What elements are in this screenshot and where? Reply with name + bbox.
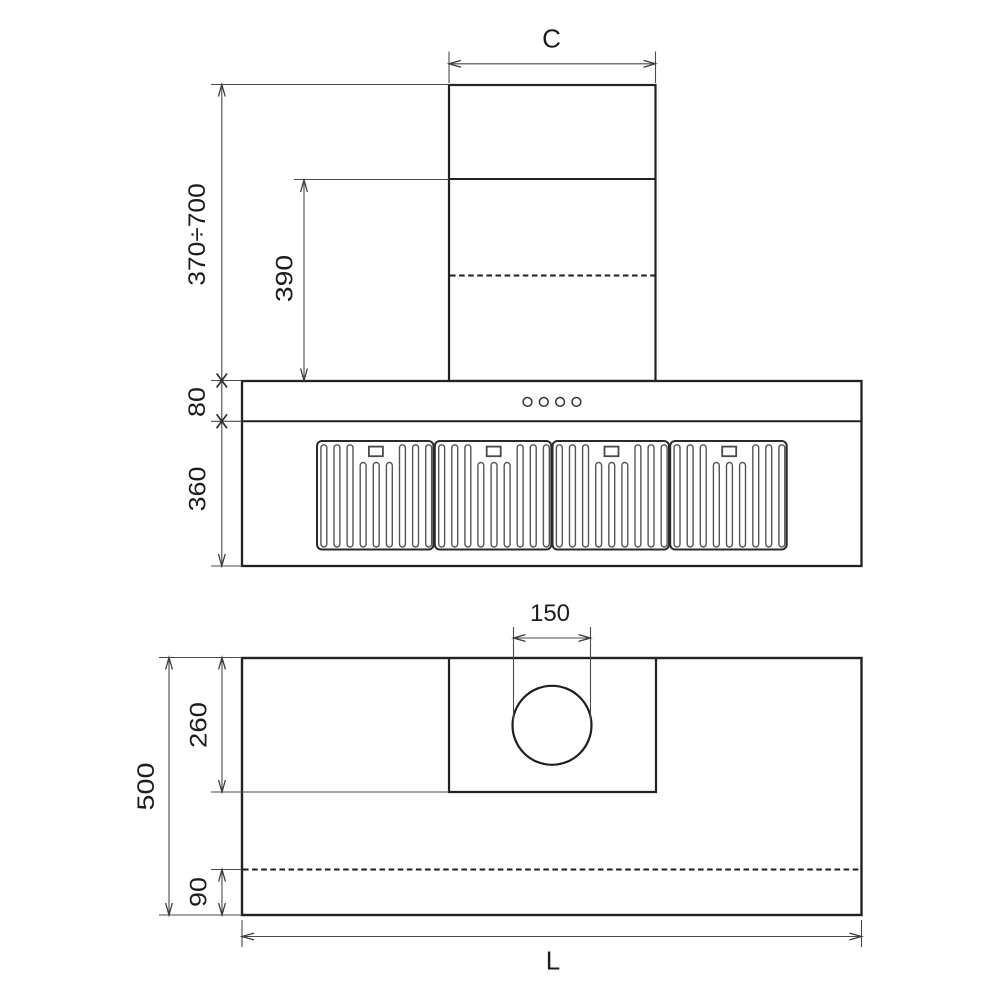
- svg-text:150: 150: [530, 600, 570, 627]
- svg-text:90: 90: [186, 877, 212, 907]
- svg-text:260: 260: [186, 702, 212, 748]
- svg-text:L: L: [546, 946, 560, 976]
- svg-text:370÷700: 370÷700: [184, 183, 211, 286]
- svg-text:360: 360: [185, 467, 211, 512]
- svg-text:500: 500: [132, 762, 159, 810]
- svg-text:C: C: [542, 24, 561, 54]
- svg-text:80: 80: [184, 387, 210, 417]
- svg-text:390: 390: [271, 255, 298, 302]
